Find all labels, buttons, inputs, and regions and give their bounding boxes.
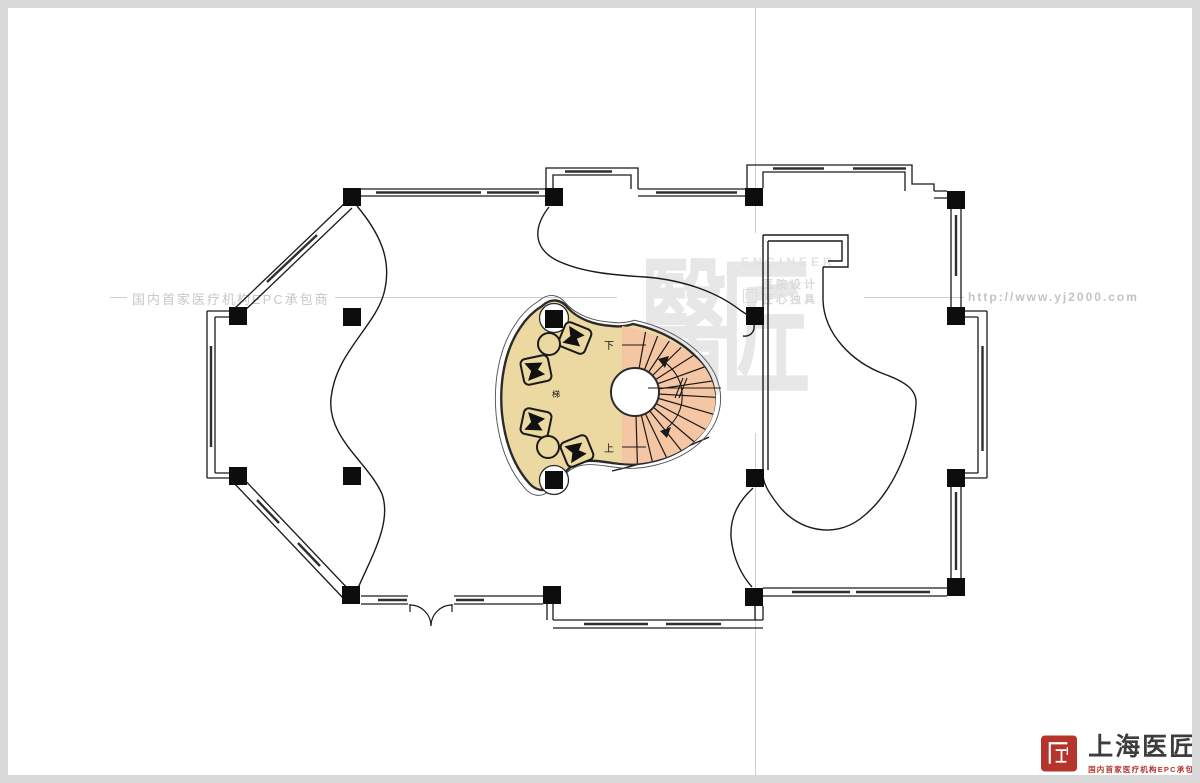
column — [543, 586, 561, 604]
column — [745, 588, 763, 606]
round-table — [537, 436, 559, 458]
column — [545, 471, 563, 489]
column — [947, 191, 965, 209]
column — [545, 310, 563, 328]
column — [746, 469, 764, 487]
company-name: 上海医匠 — [1088, 735, 1200, 760]
column — [947, 469, 965, 487]
entrance-double-door — [410, 604, 452, 626]
company-seal-icon — [1041, 735, 1077, 772]
stair-well — [611, 368, 659, 416]
company-tagline: 国内首家医疗机构EPC承包商 — [1088, 764, 1200, 783]
company-logo: 上海医匠 国内首家医疗机构EPC承包商 — [1041, 735, 1200, 783]
column — [343, 308, 361, 326]
armchair — [520, 407, 553, 438]
column — [229, 307, 247, 325]
armchair — [520, 354, 553, 385]
stair-note-label: 梯 — [552, 389, 560, 399]
column — [545, 188, 563, 206]
column — [947, 578, 965, 596]
column — [229, 467, 247, 485]
drawing-sheet: 醫匠 ENGINEER 医院设计 匠心独具 国内首家医疗机构EPC承包商 htt… — [0, 0, 1200, 783]
round-table — [538, 333, 560, 355]
column — [947, 307, 965, 325]
reception-stair-island: 下 上 梯 — [495, 295, 727, 495]
column — [342, 586, 360, 604]
column — [343, 188, 361, 206]
stair-down-label: 下 — [604, 341, 614, 352]
stair-up-label: 上 — [604, 443, 614, 455]
floor-plan: 下 上 梯 — [0, 0, 1200, 783]
column — [746, 307, 764, 325]
column — [745, 188, 763, 206]
column — [343, 467, 361, 485]
